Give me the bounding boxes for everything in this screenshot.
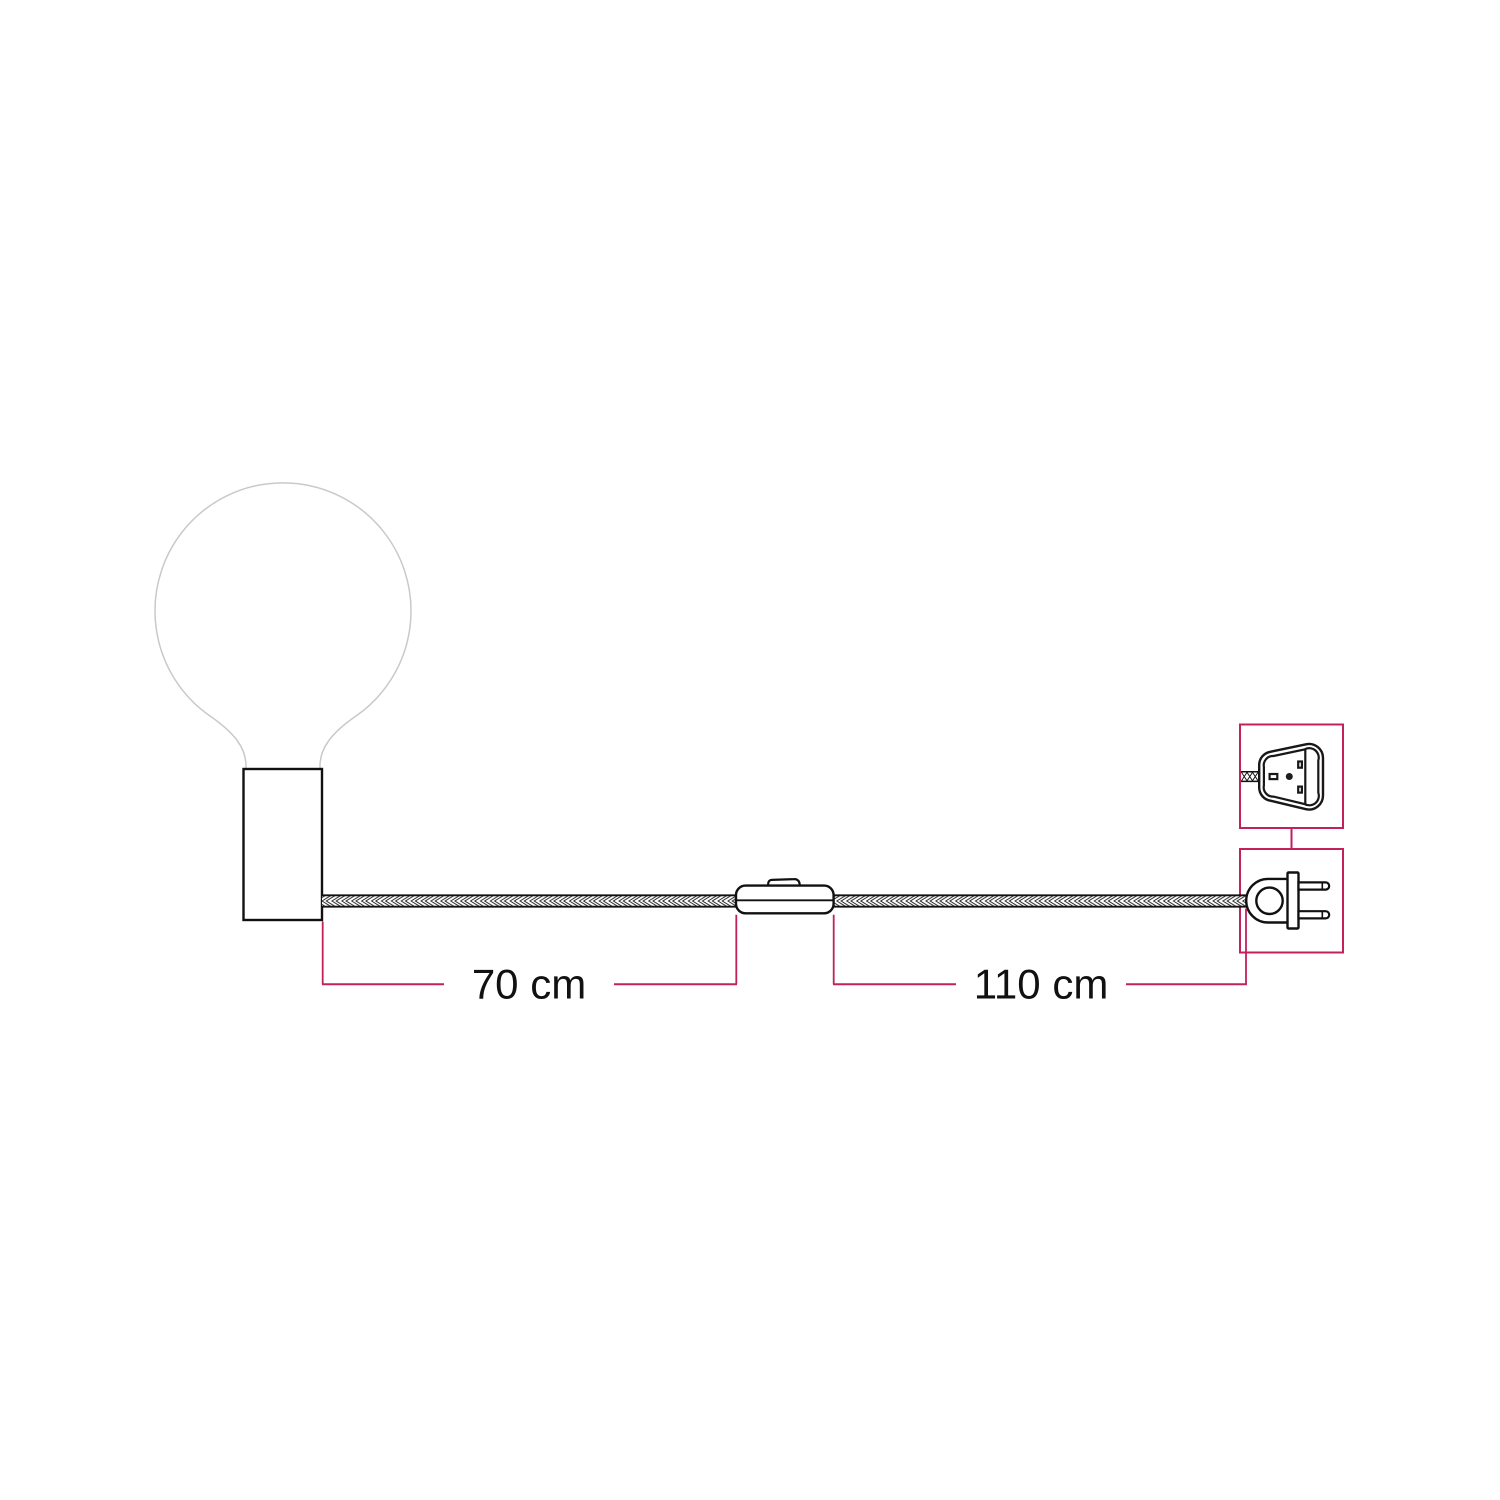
svg-text:110 cm: 110 cm: [974, 961, 1109, 1008]
svg-text:70 cm: 70 cm: [472, 961, 586, 1008]
